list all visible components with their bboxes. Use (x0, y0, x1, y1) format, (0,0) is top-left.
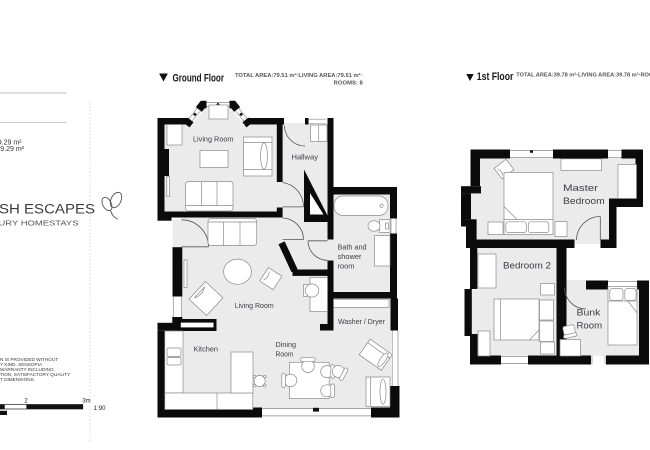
svg-text:Ground Floor: Ground Floor (173, 72, 225, 84)
svg-text:T DIMENSIONS.: T DIMENSIONS. (0, 377, 35, 382)
svg-text:TOTAL AREA:79.51 m²·LIVING ARE: TOTAL AREA:79.51 m²·LIVING AREA:79.51 m²… (235, 72, 363, 79)
svg-text:shower: shower (338, 252, 362, 261)
svg-text:3m: 3m (82, 399, 90, 405)
svg-text:19.29 m²: 19.29 m² (0, 146, 25, 153)
svg-text:Dining: Dining (276, 340, 297, 349)
svg-text:Bath and: Bath and (338, 243, 367, 252)
svg-text:1:90: 1:90 (94, 405, 107, 412)
svg-text:Bunk: Bunk (577, 307, 601, 317)
svg-text:Room: Room (276, 349, 294, 358)
svg-text:Hallway: Hallway (292, 152, 319, 161)
svg-text:Master: Master (563, 183, 598, 193)
svg-text:1st Floor: 1st Floor (477, 71, 514, 83)
svg-text:TOTAL AREA:39.78 m²·LIVING ARE: TOTAL AREA:39.78 m²·LIVING AREA:39.78 m²… (516, 71, 650, 78)
svg-text:Living Room: Living Room (235, 301, 274, 310)
svg-text:Room: Room (577, 320, 603, 330)
svg-text:SH ESCAPES: SH ESCAPES (0, 202, 95, 217)
svg-text:Kitchen: Kitchen (194, 345, 219, 354)
svg-text:ROOMS: 8: ROOMS: 8 (334, 80, 364, 86)
svg-text:Bedroom: Bedroom (563, 196, 605, 206)
svg-text:Washer / Dryer: Washer / Dryer (338, 317, 385, 326)
svg-text:room: room (338, 262, 355, 271)
svg-text:Living Room: Living Room (193, 135, 234, 144)
svg-text:Bedroom 2: Bedroom 2 (503, 260, 551, 270)
svg-text:URY HOMESTAYS: URY HOMESTAYS (0, 219, 79, 228)
